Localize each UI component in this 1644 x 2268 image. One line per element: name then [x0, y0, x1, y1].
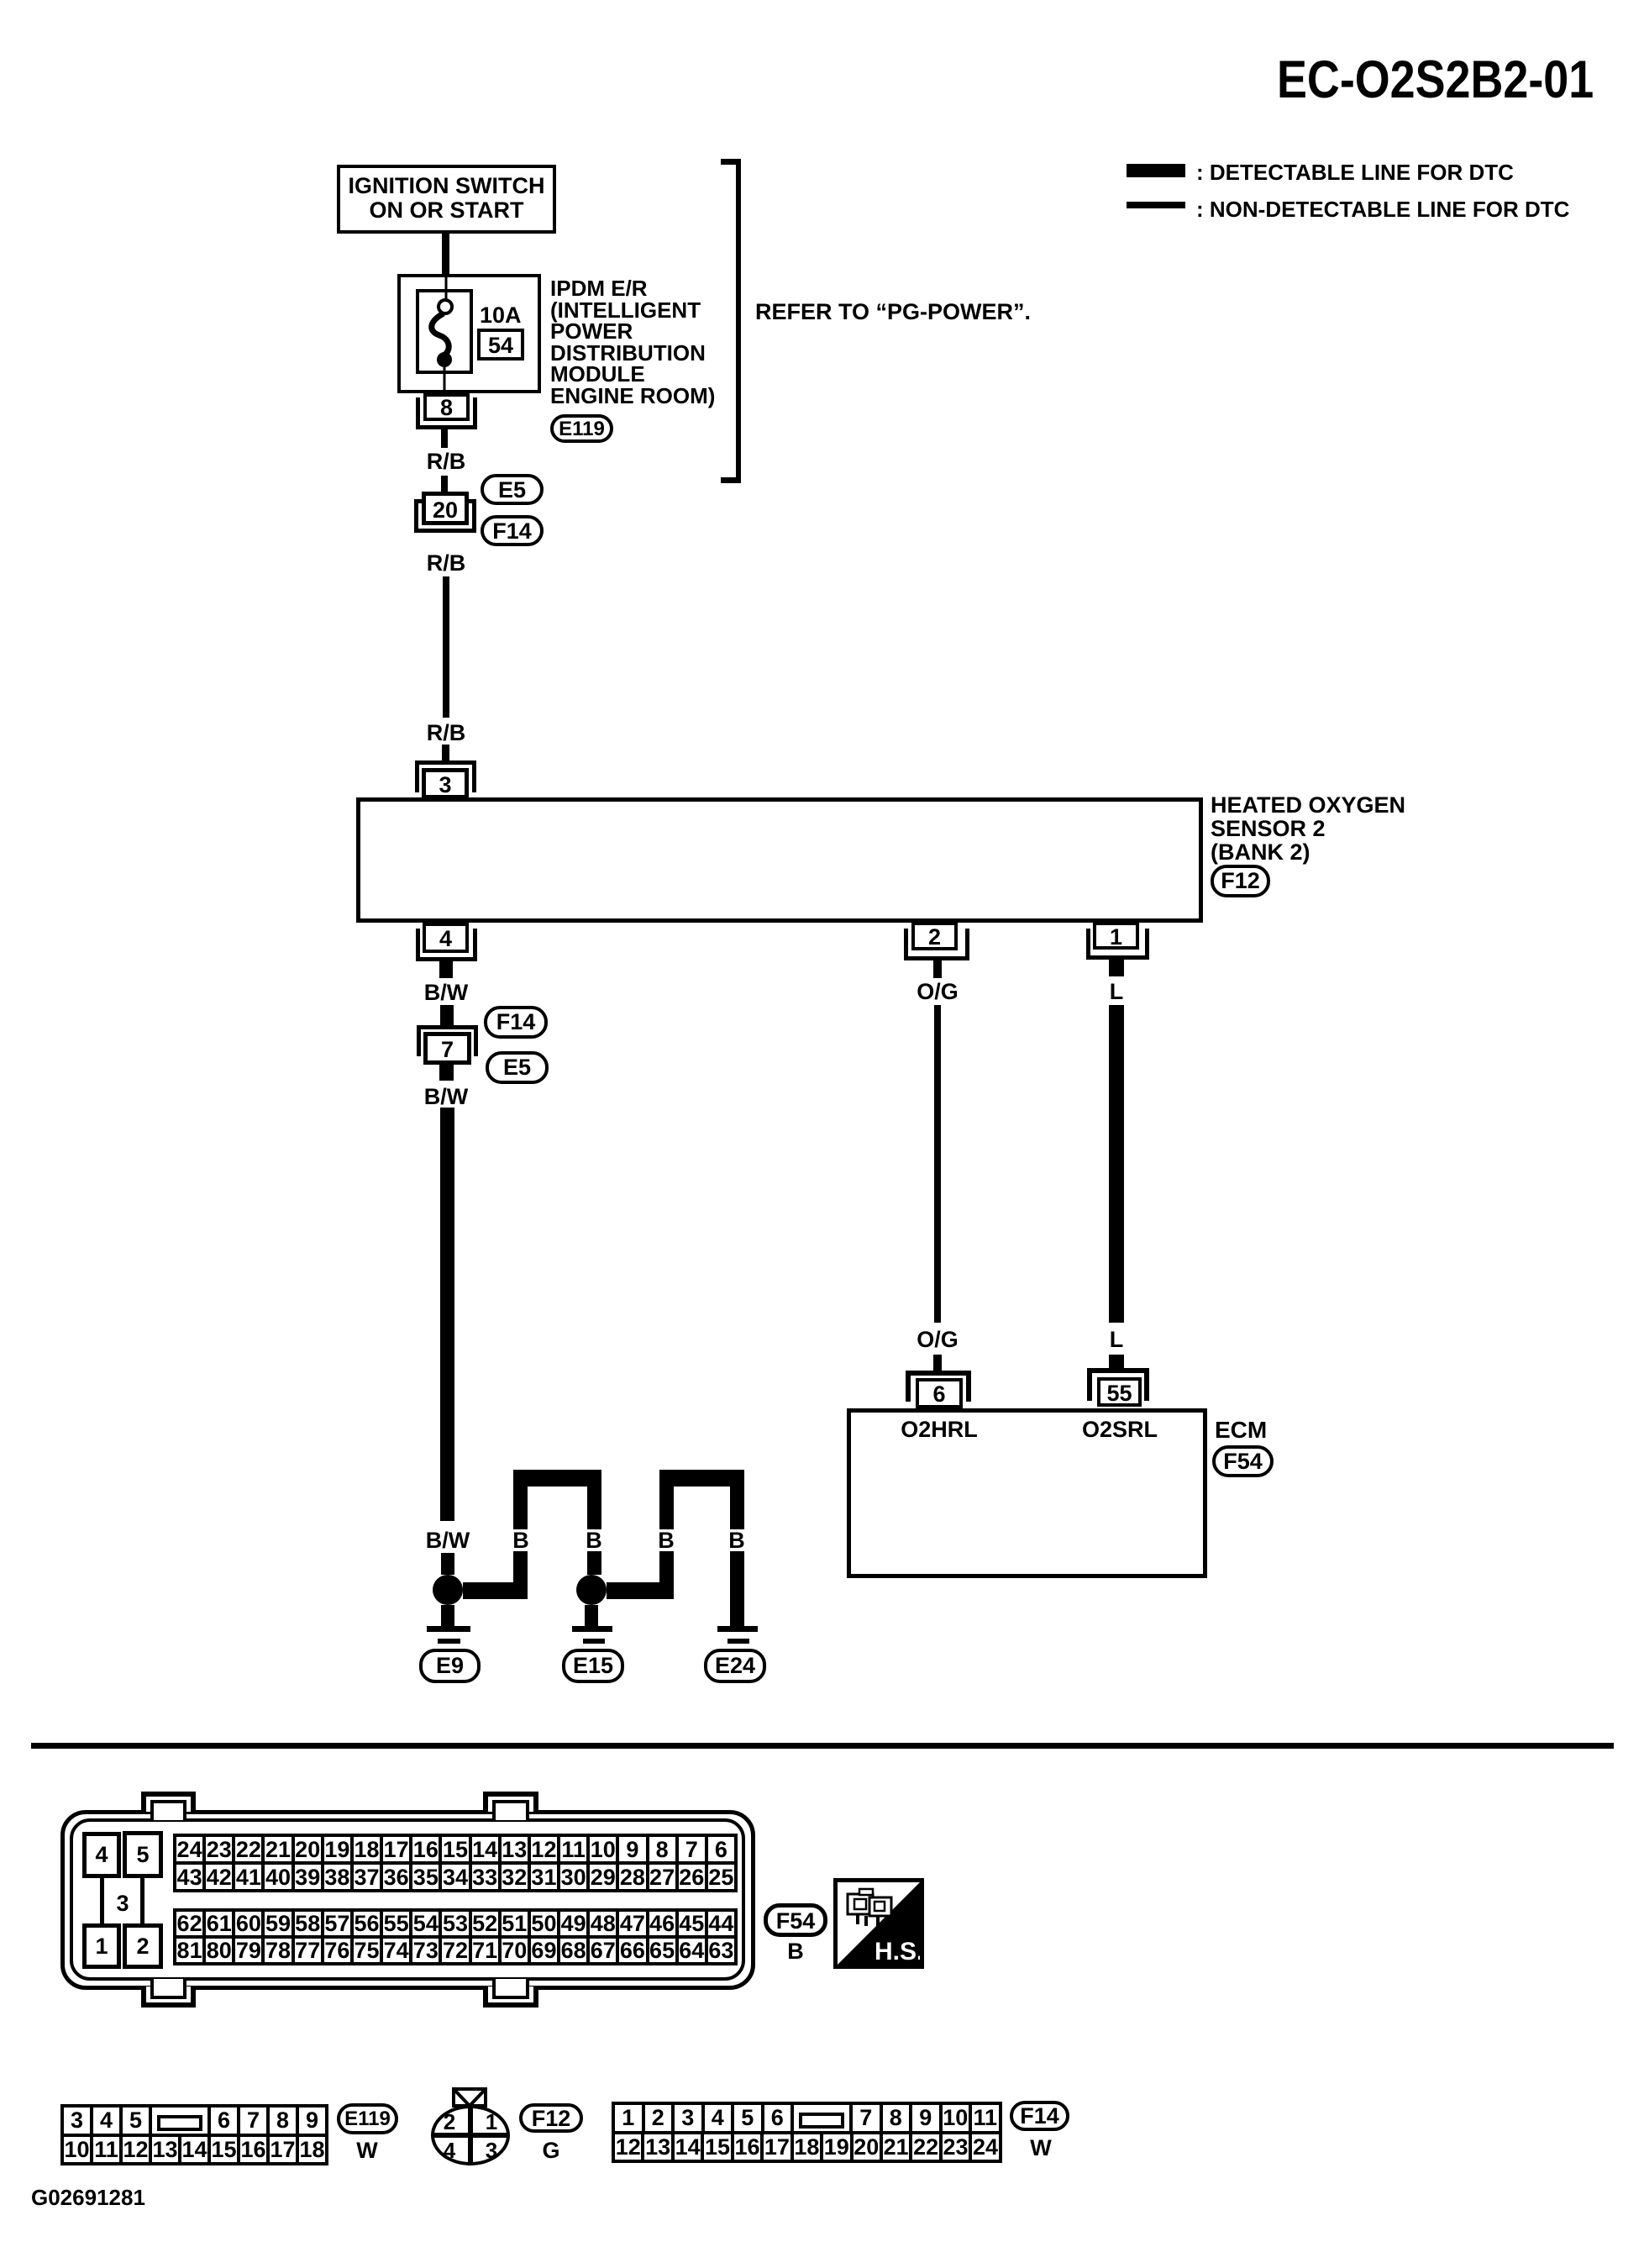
- svg-text:H.S.: H.S.: [875, 1938, 920, 1965]
